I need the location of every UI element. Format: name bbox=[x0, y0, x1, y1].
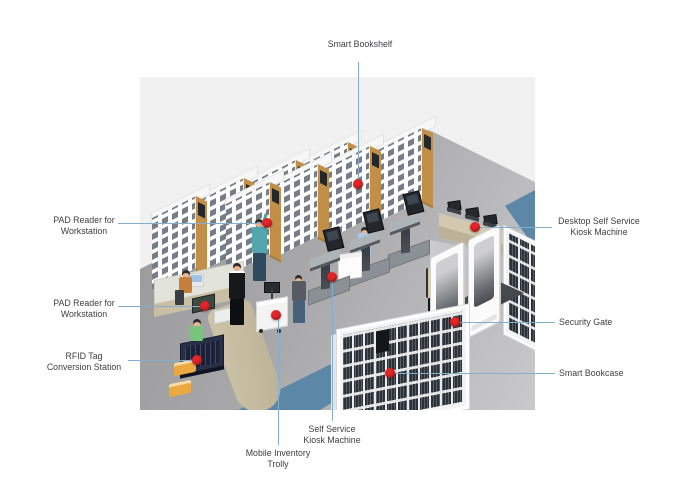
callout-mobile-inventory-trolly: Mobile Inventory Trolly bbox=[222, 448, 334, 469]
kiosk-screen-display bbox=[326, 230, 339, 241]
marker-smart-bookshelf bbox=[353, 179, 363, 189]
desktop-kiosk-terminal bbox=[447, 201, 462, 213]
kiosk-screen bbox=[323, 226, 345, 251]
marker-desktop-kiosk bbox=[470, 222, 480, 232]
marker-rfid-conversion-station bbox=[192, 355, 202, 365]
marker-mobile-trolley bbox=[271, 310, 281, 320]
marker-self-service-kiosk bbox=[327, 272, 337, 282]
callout-pad-reader-workstation-1: PAD Reader for Workstation bbox=[28, 215, 140, 236]
leader-line bbox=[460, 322, 555, 323]
callout-security-gate: Security Gate bbox=[559, 317, 659, 328]
bookshelf-screen bbox=[198, 202, 205, 219]
leader-line bbox=[394, 373, 555, 374]
callout-pad-reader-workstation-2: PAD Reader for Workstation bbox=[28, 298, 140, 319]
self-service-kiosk bbox=[308, 227, 352, 299]
callout-smart-bookshelf: Smart Bookshelf bbox=[300, 39, 420, 50]
security-gate-panel bbox=[468, 224, 500, 338]
desktop-kiosk-terminal bbox=[465, 208, 480, 220]
leader-line bbox=[118, 223, 266, 224]
bookshelf-end-panel bbox=[196, 196, 207, 277]
gate-opening bbox=[474, 235, 494, 308]
leader-line bbox=[358, 62, 359, 183]
bookshelf-screen bbox=[320, 170, 327, 187]
leader-line bbox=[332, 279, 333, 421]
library-rfid-diagram: Smart Bookshelf PAD Reader for Workstati… bbox=[0, 0, 680, 499]
bookcase-screen bbox=[376, 329, 389, 354]
kiosk-screen bbox=[403, 190, 425, 215]
marker-smart-bookcase bbox=[385, 368, 395, 378]
trolley-wheel bbox=[259, 329, 263, 333]
marker-pad-reader-desk bbox=[200, 301, 210, 311]
callout-rfid-tag-conversion-station: RFID Tag Conversion Station bbox=[20, 351, 148, 372]
bookshelf-screen bbox=[424, 134, 431, 151]
callout-smart-bookcase: Smart Bookcase bbox=[559, 368, 659, 379]
marker-security-gate bbox=[450, 317, 460, 327]
bookshelf-screen bbox=[272, 188, 279, 205]
kiosk-screen bbox=[363, 208, 385, 233]
callout-self-service-kiosk: Self Service Kiosk Machine bbox=[276, 424, 388, 445]
bookshelf-screen bbox=[372, 152, 379, 169]
kiosk-screen-display bbox=[406, 194, 419, 205]
kiosk-screen-display bbox=[366, 212, 379, 223]
marker-pad-reader-shelf bbox=[262, 218, 272, 228]
callout-desktop-self-service-kiosk: Desktop Self Service Kiosk Machine bbox=[544, 216, 654, 237]
self-service-kiosk bbox=[388, 191, 432, 263]
bookcase-cells bbox=[343, 312, 463, 410]
leader-line bbox=[478, 227, 552, 228]
trolley-screen-stalk bbox=[271, 289, 273, 299]
